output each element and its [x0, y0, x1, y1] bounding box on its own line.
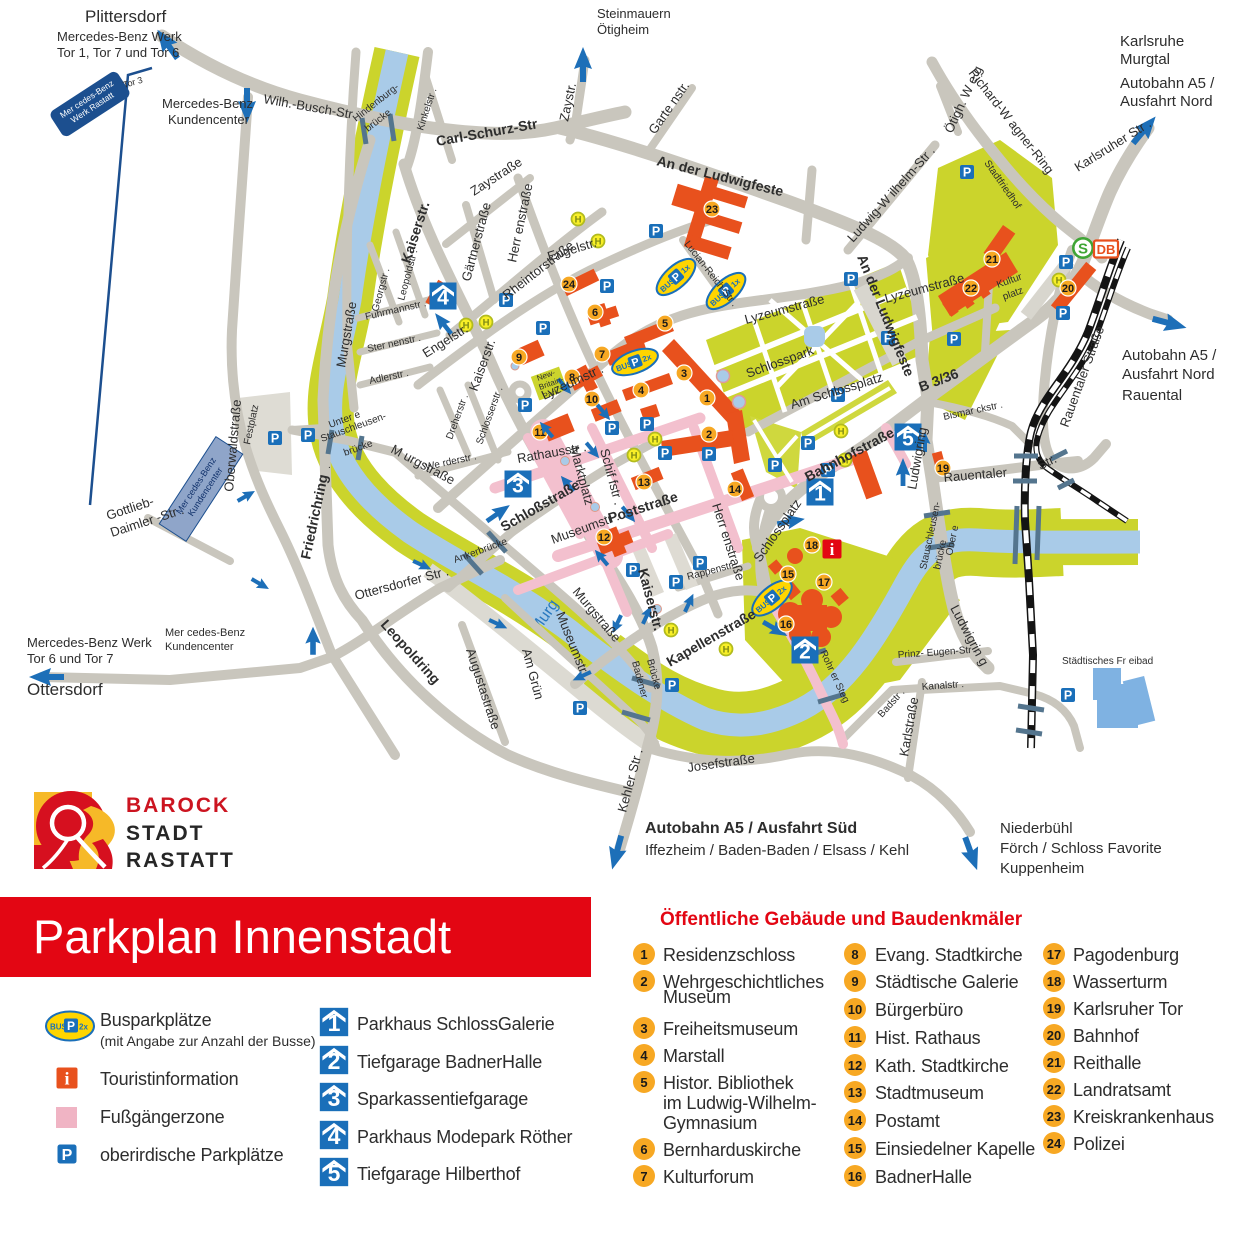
svg-text:DB: DB: [1097, 242, 1116, 257]
svg-text:11: 11: [848, 1030, 862, 1045]
svg-text:9: 9: [516, 352, 522, 364]
svg-text:Mercedes-Benz: Mercedes-Benz: [162, 96, 253, 111]
svg-text:Städtische Galerie: Städtische Galerie: [875, 972, 1019, 992]
svg-text:im Ludwig-Wilhelm-: im Ludwig-Wilhelm-: [663, 1093, 817, 1113]
svg-text:1: 1: [814, 483, 826, 506]
svg-text:6: 6: [640, 1142, 647, 1157]
svg-text:5: 5: [328, 1160, 341, 1186]
svg-text:Histor. Bibliothek: Histor. Bibliothek: [663, 1073, 795, 1093]
svg-text:oberirdische Parkplätze: oberirdische Parkplätze: [100, 1145, 284, 1165]
svg-text:Touristinformation: Touristinformation: [100, 1069, 238, 1089]
svg-text:Postamt: Postamt: [875, 1111, 940, 1131]
svg-text:Städtisches Fr eibad: Städtisches Fr eibad: [1062, 656, 1153, 667]
svg-text:BadnerHalle: BadnerHalle: [875, 1167, 972, 1187]
svg-text:Kuppenheim: Kuppenheim: [1000, 860, 1084, 877]
svg-text:6: 6: [592, 307, 598, 319]
svg-text:2: 2: [328, 1048, 341, 1074]
svg-text:Residenzschloss: Residenzschloss: [663, 945, 795, 965]
svg-text:(mit Angabe zur Anzahl der Bus: (mit Angabe zur Anzahl der Busse): [100, 1033, 316, 1049]
svg-text:STADT: STADT: [126, 822, 204, 845]
svg-text:Ottersdorf: Ottersdorf: [27, 680, 103, 699]
svg-text:14: 14: [848, 1113, 863, 1128]
svg-text:Sparkassentiefgarage: Sparkassentiefgarage: [357, 1089, 528, 1109]
svg-text:10: 10: [586, 394, 598, 406]
svg-text:Hist. Rathaus: Hist. Rathaus: [875, 1028, 981, 1048]
svg-text:18: 18: [1047, 974, 1061, 989]
svg-text:Ötigheim: Ötigheim: [597, 22, 649, 37]
svg-text:9: 9: [851, 974, 858, 989]
svg-text:Bahnhof: Bahnhof: [1073, 1026, 1140, 1046]
svg-text:Murgtal: Murgtal: [1120, 51, 1170, 68]
svg-text:2x: 2x: [79, 1023, 88, 1032]
svg-text:23: 23: [1047, 1109, 1061, 1124]
svg-text:Steinmauern: Steinmauern: [597, 6, 671, 21]
svg-text:2: 2: [640, 974, 647, 989]
svg-text:15: 15: [782, 569, 794, 581]
svg-text:Mercedes-Benz Werk: Mercedes-Benz Werk: [57, 29, 182, 44]
svg-text:Bernharduskirche: Bernharduskirche: [663, 1140, 801, 1160]
svg-text:Ausfahrt Nord: Ausfahrt Nord: [1122, 366, 1215, 383]
svg-text:S: S: [1078, 241, 1088, 258]
svg-text:14: 14: [729, 484, 742, 496]
svg-text:15: 15: [848, 1141, 862, 1156]
svg-text:Einsiedelner Kapelle: Einsiedelner Kapelle: [875, 1139, 1035, 1159]
svg-text:BAROCK: BAROCK: [126, 794, 230, 817]
svg-text:Gymnasium: Gymnasium: [663, 1113, 757, 1133]
svg-text:23: 23: [706, 204, 718, 216]
svg-text:2: 2: [799, 641, 811, 664]
svg-text:Parkhaus Modepark Röther: Parkhaus Modepark Röther: [357, 1127, 573, 1147]
svg-text:Rauental: Rauental: [1122, 387, 1182, 404]
svg-text:Reithalle: Reithalle: [1073, 1053, 1141, 1073]
svg-text:P: P: [62, 1147, 73, 1164]
svg-text:Busparkplätze: Busparkplätze: [100, 1010, 212, 1030]
svg-text:Autobahn A5 /: Autobahn A5 /: [1120, 75, 1215, 92]
svg-text:i: i: [64, 1069, 69, 1089]
svg-text:3: 3: [512, 475, 524, 498]
svg-text:5: 5: [640, 1075, 647, 1090]
svg-text:Kundencenter: Kundencenter: [168, 112, 250, 127]
svg-text:Museum: Museum: [663, 987, 731, 1007]
svg-text:2: 2: [706, 429, 712, 441]
svg-text:18: 18: [806, 540, 818, 552]
svg-text:1: 1: [328, 1010, 341, 1036]
svg-text:17: 17: [1047, 947, 1061, 962]
svg-text:7: 7: [599, 349, 605, 361]
svg-text:Wasserturm: Wasserturm: [1073, 972, 1167, 992]
svg-text:Polizei: Polizei: [1073, 1134, 1125, 1154]
svg-text:20: 20: [1062, 283, 1074, 295]
svg-text:16: 16: [848, 1169, 862, 1184]
svg-text:21: 21: [1047, 1055, 1061, 1070]
svg-text:Öffentliche Gebäude und Bauden: Öffentliche Gebäude und Baudenkmäler: [660, 909, 1023, 930]
svg-text:Mer cedes-Benz: Mer cedes-Benz: [165, 627, 245, 639]
svg-text:Freiheitsmuseum: Freiheitsmuseum: [663, 1019, 798, 1039]
svg-text:Niederbühl: Niederbühl: [1000, 820, 1073, 837]
svg-text:Iffezheim / Baden-Baden / Elsa: Iffezheim / Baden-Baden / Elsass / Kehl: [645, 842, 909, 859]
svg-text:Ausfahrt Nord: Ausfahrt Nord: [1120, 93, 1213, 110]
svg-text:Kreiskrankenhaus: Kreiskrankenhaus: [1073, 1107, 1214, 1127]
svg-text:Autobahn A5 /: Autobahn A5 /: [1122, 347, 1217, 364]
svg-text:13: 13: [848, 1085, 862, 1100]
svg-text:1: 1: [640, 947, 647, 962]
svg-text:Kulturforum: Kulturforum: [663, 1167, 754, 1187]
svg-text:Tor 1, Tor 7 und Tor 6: Tor 1, Tor 7 und Tor 6: [57, 45, 179, 60]
svg-text:Autobahn A5 / Ausfahrt Süd: Autobahn A5 / Ausfahrt Süd: [645, 820, 857, 837]
svg-text:Tiefgarage BadnerHalle: Tiefgarage BadnerHalle: [357, 1052, 542, 1072]
svg-text:16: 16: [780, 619, 792, 631]
svg-text:Kath. Stadtkirche: Kath. Stadtkirche: [875, 1056, 1009, 1076]
svg-text:Förch / Schloss Favorite: Förch / Schloss Favorite: [1000, 840, 1162, 857]
svg-text:P: P: [67, 1019, 75, 1033]
svg-text:17: 17: [818, 577, 830, 589]
svg-text:Stadtmuseum: Stadtmuseum: [875, 1083, 984, 1103]
svg-text:.: .: [328, 460, 331, 471]
svg-text:24: 24: [563, 279, 576, 291]
svg-text:22: 22: [1047, 1082, 1061, 1097]
svg-text:4: 4: [638, 385, 645, 397]
svg-text:RASTATT: RASTATT: [126, 849, 235, 872]
svg-text:Tiefgarage Hilberthof: Tiefgarage Hilberthof: [357, 1164, 521, 1184]
svg-text:12: 12: [598, 532, 610, 544]
svg-text:Mercedes-Benz Werk: Mercedes-Benz Werk: [27, 635, 152, 650]
svg-text:Marstall: Marstall: [663, 1046, 724, 1066]
svg-text:22: 22: [965, 283, 977, 295]
svg-text:12: 12: [848, 1058, 862, 1073]
svg-text:Bürgerbüro: Bürgerbüro: [875, 1000, 963, 1020]
svg-text:Karlsruher Tor: Karlsruher Tor: [1073, 999, 1183, 1019]
svg-text:19: 19: [1047, 1001, 1061, 1016]
svg-text:21: 21: [986, 254, 998, 266]
svg-text:4: 4: [437, 287, 449, 310]
svg-text:24: 24: [1047, 1136, 1062, 1151]
svg-text:7: 7: [640, 1169, 647, 1184]
svg-text:Plittersdorf: Plittersdorf: [85, 7, 167, 26]
svg-text:3: 3: [681, 368, 687, 380]
svg-text:Kundencenter: Kundencenter: [165, 641, 234, 653]
svg-text:Parkplan Innenstadt: Parkplan Innenstadt: [33, 910, 451, 963]
svg-text:20: 20: [1047, 1028, 1061, 1043]
svg-text:4: 4: [328, 1123, 341, 1149]
svg-text:Karlsruhe: Karlsruhe: [1120, 33, 1184, 50]
svg-text:13: 13: [638, 477, 650, 489]
svg-text:Evang. Stadtkirche: Evang. Stadtkirche: [875, 945, 1023, 965]
svg-text:Landratsamt: Landratsamt: [1073, 1080, 1171, 1100]
svg-text:Tor 6 und Tor 7: Tor 6 und Tor 7: [27, 651, 113, 666]
svg-text:4: 4: [640, 1048, 648, 1063]
svg-text:10: 10: [848, 1002, 862, 1017]
svg-text:i: i: [830, 540, 835, 559]
svg-text:Pagodenburg: Pagodenburg: [1073, 945, 1179, 965]
svg-text:Parkhaus SchlossGalerie: Parkhaus SchlossGalerie: [357, 1014, 555, 1034]
svg-text:1: 1: [704, 393, 710, 405]
svg-text:3: 3: [328, 1085, 341, 1111]
svg-text:5: 5: [662, 318, 668, 330]
svg-text:8: 8: [851, 947, 858, 962]
svg-text:3: 3: [640, 1021, 647, 1036]
svg-text:Fußgängerzone: Fußgängerzone: [100, 1107, 225, 1127]
